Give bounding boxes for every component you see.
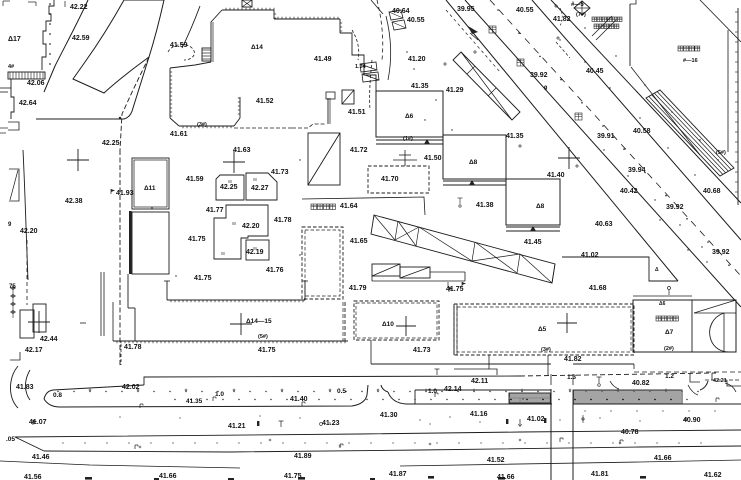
svg-text:41.35: 41.35 <box>411 83 429 90</box>
svg-text:40.63: 40.63 <box>595 221 613 228</box>
svg-text:41.66: 41.66 <box>159 473 177 480</box>
svg-text:41.52: 41.52 <box>487 457 505 464</box>
svg-text:40.68: 40.68 <box>703 188 721 195</box>
svg-text:41.59: 41.59 <box>170 42 188 49</box>
svg-text:41.21: 41.21 <box>228 423 246 430</box>
svg-text:Δ8: Δ8 <box>469 159 478 166</box>
svg-text:Δ5: Δ5 <box>538 326 547 333</box>
svg-text:1.2: 1.2 <box>665 373 674 380</box>
svg-text:42.25: 42.25 <box>102 140 120 147</box>
svg-text:41.89: 41.89 <box>294 453 312 460</box>
svg-text:41.81: 41.81 <box>591 471 609 478</box>
svg-text:42.20: 42.20 <box>242 223 260 230</box>
svg-text:40.45: 40.45 <box>586 68 604 75</box>
svg-text:41.35: 41.35 <box>506 133 524 140</box>
svg-text:42.14: 42.14 <box>444 386 462 393</box>
svg-text:41.75: 41.75 <box>446 286 464 293</box>
svg-text:42.59: 42.59 <box>72 35 90 42</box>
svg-text:41.02: 41.02 <box>527 416 545 423</box>
svg-text:41.78: 41.78 <box>124 344 142 351</box>
svg-text:41.51: 41.51 <box>348 109 366 116</box>
svg-text:42.06: 42.06 <box>27 80 45 87</box>
svg-text:1.34: 1.34 <box>355 64 367 70</box>
svg-text:.05: .05 <box>6 436 15 443</box>
svg-text:41.87: 41.87 <box>389 471 407 478</box>
svg-text:41.73: 41.73 <box>271 169 289 176</box>
svg-text:4#: 4# <box>8 64 14 70</box>
svg-text:41.20: 41.20 <box>408 56 426 63</box>
svg-text:41.59: 41.59 <box>186 176 204 183</box>
svg-text:41.77: 41.77 <box>206 207 224 214</box>
svg-text:39.94: 39.94 <box>628 167 646 174</box>
svg-text:(2#): (2#) <box>664 346 674 352</box>
svg-text:42.64: 42.64 <box>19 100 37 107</box>
svg-text:41.23: 41.23 <box>322 420 340 427</box>
svg-text:41.75: 41.75 <box>258 347 276 354</box>
svg-text:41.72: 41.72 <box>350 147 368 154</box>
svg-text:41.61: 41.61 <box>170 131 188 138</box>
svg-text:42.17: 42.17 <box>25 347 43 354</box>
svg-text:Δ10: Δ10 <box>382 321 394 328</box>
svg-text:41.35: 41.35 <box>186 398 203 405</box>
svg-text:40.55: 40.55 <box>407 17 425 24</box>
svg-text:41.50: 41.50 <box>424 155 442 162</box>
svg-text:42.20: 42.20 <box>20 228 38 235</box>
svg-text:40.82: 40.82 <box>632 380 650 387</box>
svg-text:39.92: 39.92 <box>666 204 684 211</box>
svg-text:40.64: 40.64 <box>392 8 410 15</box>
svg-text:41.02: 41.02 <box>581 252 599 259</box>
svg-text:#—16: #—16 <box>683 58 698 64</box>
svg-text:42.22: 42.22 <box>70 4 88 11</box>
svg-text:41.75: 41.75 <box>194 275 212 282</box>
svg-text:41.65: 41.65 <box>350 238 368 245</box>
svg-text:39.92: 39.92 <box>712 249 730 256</box>
svg-text:Δ17: Δ17 <box>8 36 21 43</box>
svg-text:41.63: 41.63 <box>233 147 251 154</box>
svg-text:41.40: 41.40 <box>290 396 308 403</box>
svg-text:41.75: 41.75 <box>188 236 206 243</box>
svg-text:41.49: 41.49 <box>314 56 332 63</box>
svg-text:Δ14: Δ14 <box>251 44 263 51</box>
svg-text:39.95: 39.95 <box>457 6 475 13</box>
svg-text:Δ8: Δ8 <box>536 203 545 210</box>
svg-text:41.79: 41.79 <box>349 285 367 292</box>
svg-text:Δ6: Δ6 <box>405 113 414 120</box>
svg-text:42.21: 42.21 <box>713 378 727 384</box>
svg-text:41.83: 41.83 <box>16 384 34 391</box>
svg-text:40.58: 40.58 <box>633 128 651 135</box>
svg-text:41.82: 41.82 <box>553 16 571 23</box>
svg-text:1.0: 1.0 <box>428 388 437 395</box>
svg-text:41.62: 41.62 <box>704 472 722 479</box>
svg-text:42.38: 42.38 <box>65 198 83 205</box>
svg-text:41.70: 41.70 <box>381 176 399 183</box>
svg-text:(1#): (1#) <box>403 136 413 142</box>
svg-text:41.52: 41.52 <box>256 98 274 105</box>
svg-text:41.30: 41.30 <box>380 412 398 419</box>
svg-text:42.27: 42.27 <box>251 185 269 192</box>
svg-text:Δ14—15: Δ14—15 <box>246 318 272 325</box>
svg-text:42.02: 42.02 <box>122 384 140 391</box>
svg-text:#—5: #—5 <box>571 2 584 8</box>
svg-text:41.93: 41.93 <box>116 190 134 197</box>
svg-text:39.92: 39.92 <box>530 72 548 79</box>
svg-text:41.76: 41.76 <box>266 267 284 274</box>
svg-text:1.3: 1.3 <box>567 374 576 381</box>
svg-text:(3#): (3#) <box>197 122 207 128</box>
svg-text:41.45: 41.45 <box>524 239 542 246</box>
svg-text:41.46: 41.46 <box>32 454 50 461</box>
svg-text:(5#): (5#) <box>258 334 268 340</box>
svg-text:75: 75 <box>9 284 16 290</box>
svg-text:Δ: Δ <box>655 267 659 273</box>
svg-text:0.8: 0.8 <box>53 392 62 399</box>
svg-text:41.07: 41.07 <box>29 419 47 426</box>
svg-text:41.75: 41.75 <box>284 473 302 480</box>
svg-text:1.0: 1.0 <box>215 391 224 398</box>
svg-text:(3#): (3#) <box>541 347 551 353</box>
svg-text:42.44: 42.44 <box>40 336 58 343</box>
svg-text:Δ11: Δ11 <box>144 185 156 192</box>
svg-text:42.25: 42.25 <box>220 184 238 191</box>
svg-text:(5#): (5#) <box>716 150 726 156</box>
svg-text:41.66: 41.66 <box>654 455 672 462</box>
svg-text:42.19: 42.19 <box>246 249 264 256</box>
svg-text:40.42: 40.42 <box>620 188 638 195</box>
svg-text:41.38: 41.38 <box>476 202 494 209</box>
svg-text:42.11: 42.11 <box>471 378 488 385</box>
svg-text:41.78: 41.78 <box>274 217 292 224</box>
svg-text:0.5: 0.5 <box>337 388 346 395</box>
svg-text:41.82: 41.82 <box>564 356 582 363</box>
svg-text:40.55: 40.55 <box>516 7 534 14</box>
svg-text:Δ6: Δ6 <box>659 301 666 307</box>
svg-text:41.16: 41.16 <box>470 411 488 418</box>
svg-text:40.78: 40.78 <box>621 429 639 436</box>
svg-text:41.64: 41.64 <box>340 203 358 210</box>
svg-text:41.73: 41.73 <box>413 347 431 354</box>
svg-text:41.68: 41.68 <box>589 285 607 292</box>
svg-text:39.91: 39.91 <box>597 133 615 140</box>
svg-text:41.40: 41.40 <box>547 172 565 179</box>
svg-text:41.56: 41.56 <box>24 474 42 480</box>
svg-text:41.29: 41.29 <box>446 87 464 94</box>
svg-text:41.66: 41.66 <box>497 474 515 480</box>
svg-text:Δ7: Δ7 <box>665 329 674 336</box>
svg-text:(7#): (7#) <box>576 12 586 18</box>
